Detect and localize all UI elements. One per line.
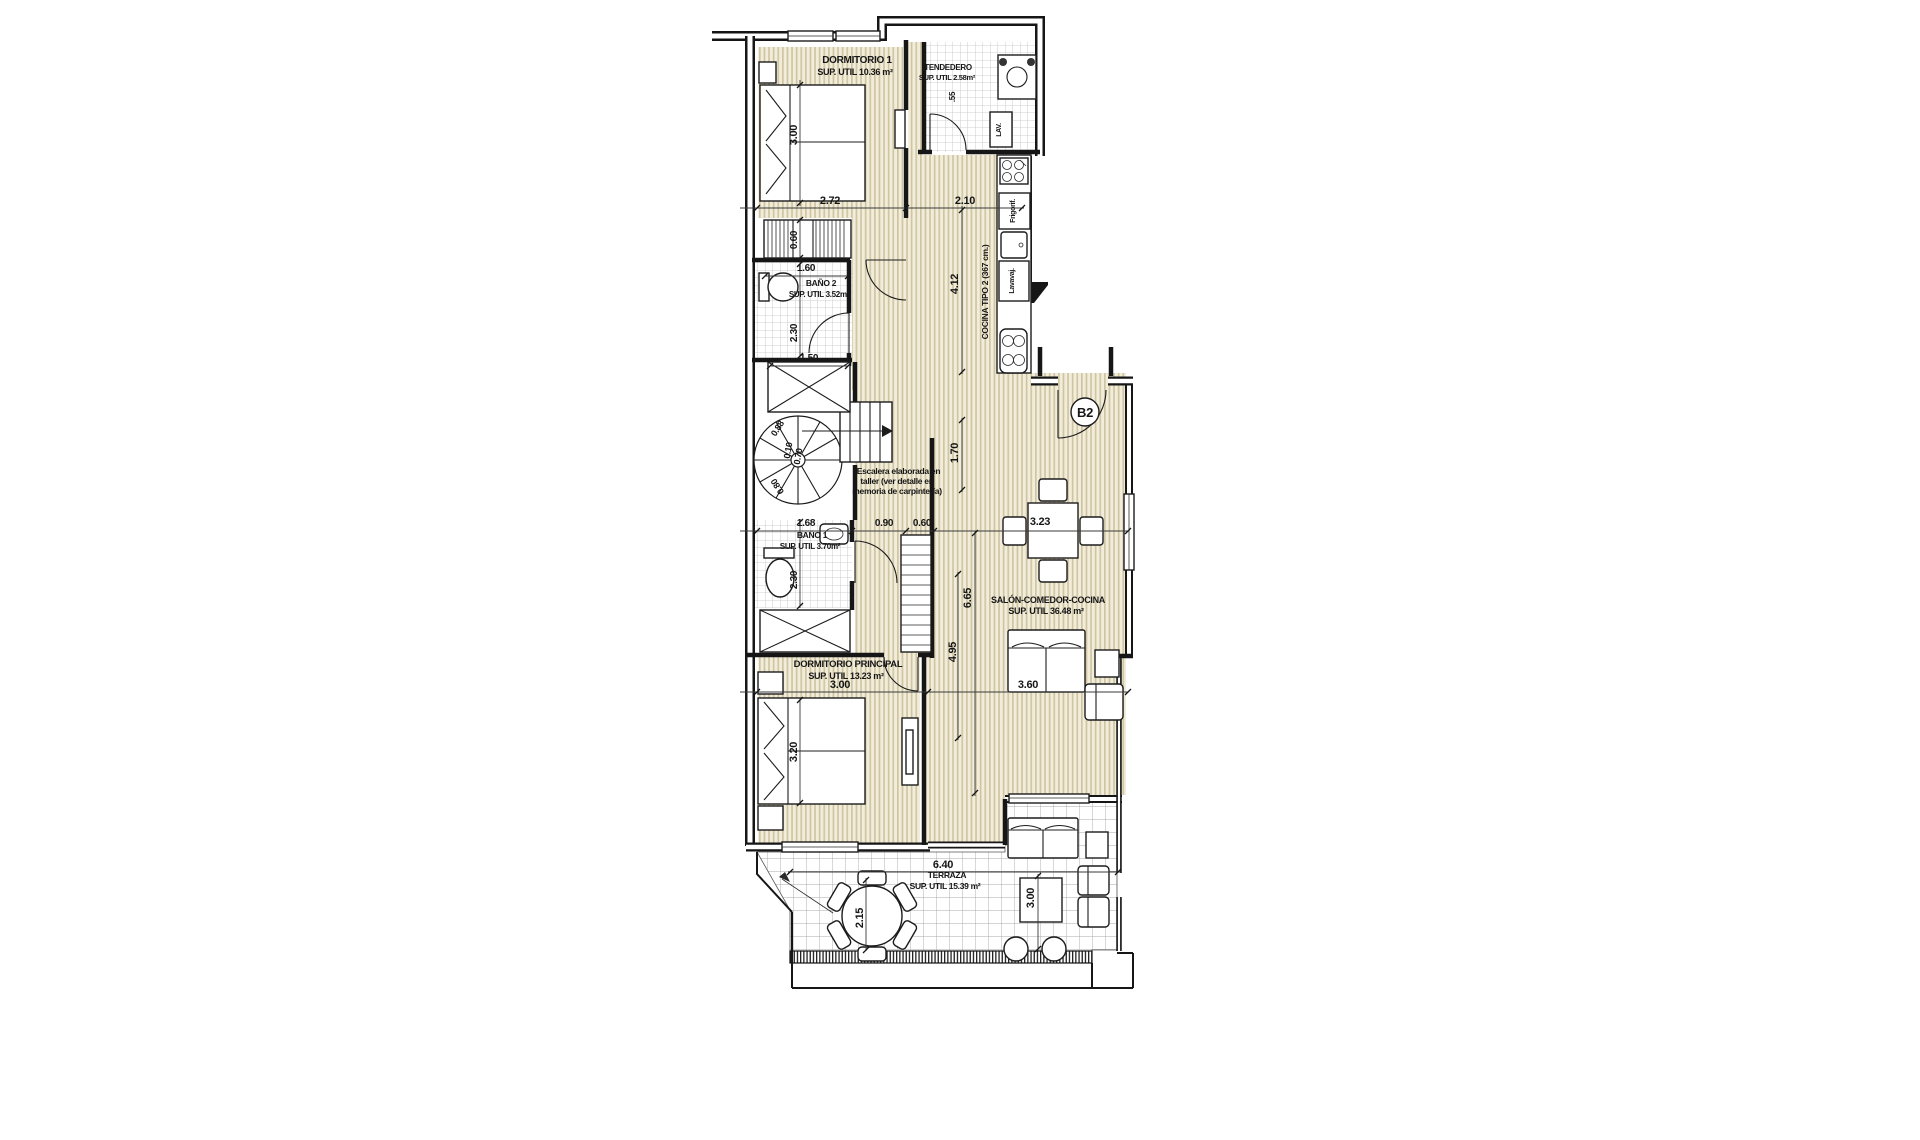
dormitorio1-label: DORMITORIO 1 <box>822 55 892 66</box>
bano1-label: BAÑO 1 <box>797 530 828 540</box>
dim: 3.23 <box>1030 516 1050 528</box>
dim: 1.50 <box>800 353 819 364</box>
dim: 0.60 <box>789 230 800 249</box>
hob-icon <box>1000 329 1027 373</box>
sink-kitchen-icon <box>1001 232 1027 258</box>
dim: 3.00 <box>1025 888 1037 908</box>
dim: 4.12 <box>949 274 961 294</box>
dim: 2.30 <box>789 323 800 342</box>
dim: 3.20 <box>788 742 800 762</box>
dim: .55 <box>948 91 957 102</box>
frigorifico-label: Frigorif. <box>1010 199 1017 223</box>
sideboard-icon <box>901 535 931 652</box>
dim: 1.60 <box>797 263 816 274</box>
unit-badge: B2 <box>1071 398 1099 426</box>
terrace-pouf-1-icon <box>1004 937 1028 961</box>
dim: 6.65 <box>962 588 974 608</box>
dim: 2.15 <box>854 908 866 928</box>
dim: 0.90 <box>875 518 894 529</box>
window-dorm1-a <box>788 31 833 41</box>
terraza-area: SUP. UTIL 15.39 m² <box>910 881 981 891</box>
dim: 2.72 <box>820 195 840 207</box>
dim: 2.30 <box>789 570 800 589</box>
lavadora-label: LAV. <box>996 123 1003 137</box>
sliding-door-dorm1 <box>895 110 905 148</box>
unit-badge-label: B2 <box>1077 405 1093 420</box>
dormp-label: DORMITORIO PRINCIPAL <box>794 659 903 670</box>
dim: 2.10 <box>955 195 975 207</box>
stair-note-1: *Escalera elaborada en <box>854 466 941 476</box>
window-salon-right <box>1124 494 1134 570</box>
dim: 3.00 <box>788 125 800 145</box>
cocina-label: COCINA TIPO 2 (367 cm.) <box>980 244 990 339</box>
tendedero-area: SUP. UTIL 2.58m² <box>919 73 976 82</box>
floor-plan-svg: DORMITORIO 1SUP. UTIL 10.36 m²TENDEDEROS… <box>0 0 1920 1140</box>
tv-unit-icon <box>902 718 918 785</box>
terrace-sofa-icon <box>1008 818 1078 858</box>
window-salon-terrace <box>1009 794 1089 803</box>
salon-area: SUP. UTIL 36.48 m² <box>1008 606 1084 616</box>
shower-bano2-icon <box>768 362 850 412</box>
dim: 1.70 <box>949 443 961 463</box>
hall-shaft-floor <box>908 42 922 155</box>
terrace-armchair-2-icon <box>1078 897 1109 927</box>
shower-bano1-icon <box>760 610 850 652</box>
stair-note-3: memoria de carpintería) <box>852 486 942 496</box>
terraza-label: TERRAZA <box>928 870 967 880</box>
salon-label: SALÓN-COMEDOR-COCINA <box>991 594 1106 605</box>
dim: 4.95 <box>947 642 959 662</box>
bano2-label: BAÑO 2 <box>806 278 837 288</box>
side-table-icon <box>1095 650 1119 677</box>
armchair-icon <box>1085 684 1123 720</box>
bano2-area: SUP. UTIL 3.52m² <box>789 290 850 299</box>
dim: 3.00 <box>830 679 850 691</box>
salon-lower-floor <box>924 655 1005 845</box>
stair-note-2: taller (ver detalle en <box>860 476 933 486</box>
terrace-pouf-2-icon <box>1042 937 1066 961</box>
bano1-area: SUP. UTIL 3.70m² <box>780 542 841 551</box>
lavavajillas-label: Lavavaj. <box>1009 268 1016 294</box>
kitchen-counter <box>997 155 1031 373</box>
window-dormp-terrace <box>782 842 858 852</box>
terrace-side-table-icon <box>1086 832 1108 858</box>
hall-mid-floor <box>852 218 908 390</box>
floor-plan-page: DORMITORIO 1SUP. UTIL 10.36 m²TENDEDEROS… <box>0 0 1920 1140</box>
dim: 3.60 <box>1018 679 1038 691</box>
dim: 1.68 <box>797 518 816 529</box>
closet-dorm1-icon <box>764 220 851 258</box>
terrace-armchair-1-icon <box>1078 866 1109 895</box>
dim: 0.60 <box>913 518 932 529</box>
dormitorio1-area: SUP. UTIL 10.36 m² <box>817 67 893 77</box>
tendedero-label: TENDEDERO <box>924 63 972 72</box>
window-dorm1-b <box>836 31 880 41</box>
